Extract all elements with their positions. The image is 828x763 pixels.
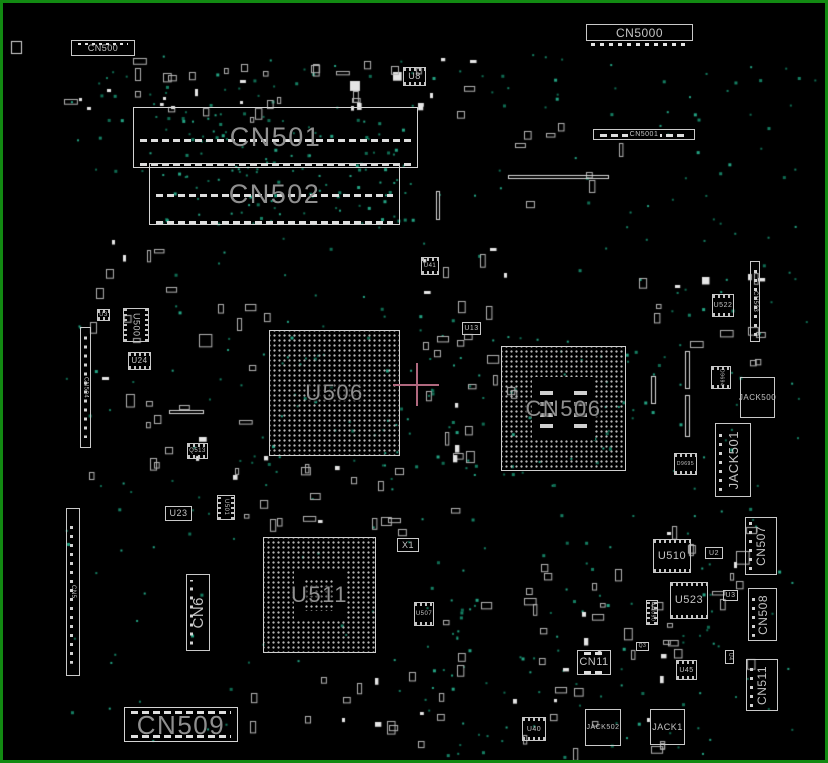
component-label: U23 — [169, 509, 187, 518]
component-label: CN5000 — [616, 27, 663, 39]
component-label: CN500 — [88, 44, 119, 53]
component-u3b[interactable]: U3 — [723, 590, 738, 601]
component-label: CN5001 — [628, 131, 661, 138]
component-u41[interactable]: U41 — [421, 257, 439, 275]
component-u4[interactable]: U4 — [725, 650, 734, 664]
component-u522[interactable]: U522 — [712, 294, 734, 317]
component-label: X1 — [402, 541, 414, 550]
component-label: U522 — [714, 302, 733, 309]
component-label: CN504 — [83, 377, 89, 398]
component-label: CN509 — [137, 712, 225, 738]
component-label: CN501 — [230, 124, 322, 151]
component-label: U501 — [223, 499, 229, 515]
component-d9695[interactable]: D9695 — [674, 453, 697, 475]
boardview-canvas: CN500CN5000CN501CN502CN5001U8U41CN503U52… — [0, 0, 828, 763]
component-cn504[interactable]: CN504 — [80, 327, 91, 448]
component-u510[interactable]: U510 — [653, 539, 691, 573]
component-u523[interactable]: U523 — [670, 582, 708, 619]
component-cn511[interactable]: CN511 — [746, 659, 778, 711]
component-cn507[interactable]: CN507 — [745, 517, 777, 575]
component-jack500[interactable]: JACK500 — [740, 377, 775, 418]
component-u40[interactable]: U40 — [522, 717, 546, 741]
component-cn11[interactable]: CN11 — [577, 650, 611, 675]
component-u501[interactable]: U501 — [217, 495, 235, 520]
component-label: CN502 — [229, 181, 321, 208]
component-u3a[interactable]: U3 — [97, 309, 110, 321]
component-cn506[interactable]: CN506 — [501, 346, 626, 471]
component-label: U13 — [464, 325, 478, 332]
component-label: D9695 — [677, 462, 694, 467]
component-label: U2 — [709, 550, 719, 557]
component-label: JACK1 — [652, 723, 683, 732]
selection-crosshair-vertical — [416, 363, 418, 406]
component-u506[interactable]: U506 — [269, 330, 400, 456]
component-label: D9694 — [719, 369, 724, 386]
component-u45[interactable]: U45 — [676, 660, 697, 680]
component-cn501[interactable]: CN501 — [133, 107, 418, 168]
pad-row — [584, 652, 604, 655]
component-label: U4 — [727, 653, 732, 660]
component-u2[interactable]: U2 — [705, 547, 723, 559]
component-label: U3 — [726, 592, 736, 599]
component-u1090[interactable]: U1090 — [646, 600, 658, 625]
component-cn503[interactable]: CN503 — [750, 261, 760, 342]
component-u507[interactable]: U507 — [414, 602, 434, 626]
bga-center-pads: CN506 — [532, 377, 596, 441]
component-q3[interactable]: Q3 — [636, 642, 649, 651]
component-u511[interactable]: U511 — [263, 537, 376, 653]
component-label: CN508 — [757, 595, 769, 635]
component-cn6[interactable]: CN6 — [186, 574, 210, 651]
component-label: U507 — [416, 611, 432, 617]
component-cn502[interactable]: CN502 — [149, 163, 400, 225]
component-jack501[interactable]: JACK501 — [715, 423, 751, 497]
component-label: CN506 — [526, 398, 602, 420]
component-label: U8 — [408, 72, 421, 81]
component-x1[interactable]: X1 — [397, 538, 419, 552]
component-cn500[interactable]: CN500 — [71, 40, 135, 56]
component-label: Q513 — [189, 448, 206, 454]
pad-row — [584, 671, 604, 674]
component-jack502[interactable]: JACK502 — [585, 709, 621, 746]
component-u8[interactable]: U8 — [403, 67, 426, 86]
component-label: JACK502 — [586, 724, 619, 731]
component-label: U510 — [658, 551, 686, 562]
component-label: CN6 — [191, 597, 206, 629]
component-q513[interactable]: Q513 — [187, 443, 208, 459]
component-label: U40 — [527, 726, 541, 733]
component-u13[interactable]: U13 — [462, 322, 481, 335]
component-label: CN11 — [579, 657, 608, 668]
component-cn5001[interactable]: CN5001 — [593, 129, 695, 140]
component-label: JACK501 — [727, 431, 740, 489]
component-cn509[interactable]: CN509 — [124, 707, 238, 742]
component-u500[interactable]: U500 — [123, 308, 149, 342]
component-label: CN503 — [752, 291, 758, 312]
component-label: JACK500 — [739, 394, 776, 402]
component-label: U1090 — [650, 604, 655, 621]
component-u23[interactable]: U23 — [165, 506, 192, 521]
component-cn5[interactable]: CN5 — [66, 508, 80, 676]
component-cn508[interactable]: CN508 — [748, 588, 777, 641]
component-label: U523 — [675, 595, 703, 606]
component-jack1[interactable]: JACK1 — [650, 709, 685, 745]
component-label: U45 — [679, 667, 693, 674]
component-label: U511 — [291, 584, 348, 606]
component-label: CN5 — [70, 585, 76, 599]
component-d9694[interactable]: D9694 — [711, 366, 731, 389]
component-label: U500 — [132, 313, 141, 337]
component-label: U41 — [424, 263, 437, 269]
component-label: U3 — [99, 312, 108, 318]
component-cn5000[interactable]: CN5000 — [586, 24, 693, 41]
component-label: U24 — [131, 357, 147, 365]
component-label: CN507 — [755, 526, 767, 566]
pad-row — [156, 221, 393, 224]
component-u24[interactable]: U24 — [128, 352, 151, 370]
component-label: CN511 — [756, 666, 768, 705]
component-label: Q3 — [639, 644, 647, 649]
component-label: U506 — [305, 382, 364, 404]
